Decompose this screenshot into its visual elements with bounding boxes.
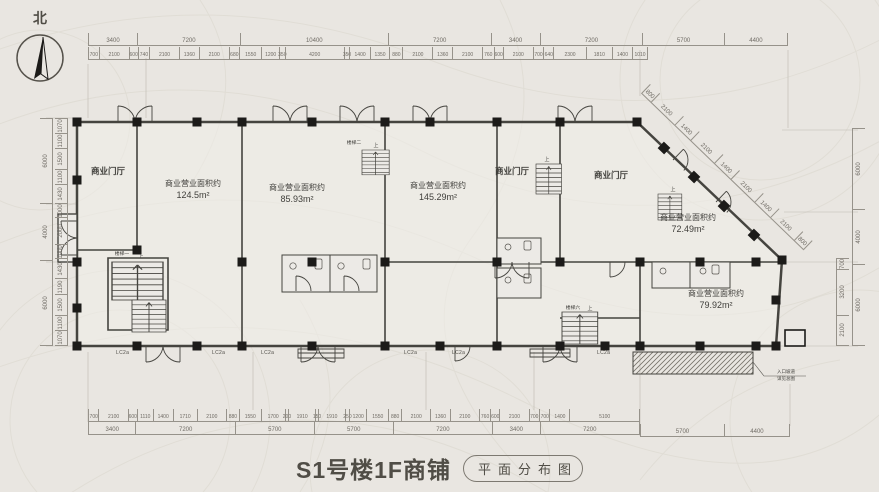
- dimension-value: 10400: [240, 33, 388, 45]
- north-label: 北: [14, 8, 66, 28]
- room-label-shop-5-area: 79.92m²: [699, 300, 732, 310]
- dimension-value: 2100: [98, 409, 127, 421]
- column: [436, 342, 445, 351]
- window-tag: LC2a: [597, 350, 610, 356]
- column: [752, 342, 761, 351]
- dimension-value: 1100: [55, 315, 67, 330]
- dimension-value: 3200: [837, 269, 849, 315]
- dimension-value: 1360: [179, 47, 199, 59]
- stair-up-5: 上: [670, 186, 675, 193]
- dimension-value: 640: [543, 47, 553, 59]
- ramp-note-line1: 入口坡道: [777, 368, 795, 375]
- dimension-value: 680: [229, 47, 239, 59]
- dimension-value: 740: [138, 47, 149, 59]
- dimension-row-bottom-right: 57004400: [640, 424, 790, 437]
- dimension-value: 1710: [173, 409, 197, 421]
- column: [636, 342, 645, 351]
- dimension-value: 1360: [430, 409, 449, 421]
- stair-up-2: 上: [373, 142, 378, 149]
- dimension-value: 3400: [491, 33, 540, 45]
- dimension-value: 3400: [88, 422, 135, 434]
- column: [193, 118, 202, 127]
- dimension-value: 700: [539, 409, 549, 421]
- stair-up-3: 上: [544, 156, 549, 163]
- dimension-value: 1700: [261, 409, 285, 421]
- dimension-value: 1000: [55, 203, 67, 217]
- dimension-column-left-outer: 600040006000: [40, 118, 53, 346]
- window-tag: LC2a: [404, 350, 417, 356]
- room-label-shop-1-area: 124.5m²: [176, 190, 209, 200]
- window-tag: LC2a: [261, 350, 274, 356]
- dimension-value: 700: [837, 258, 849, 269]
- column: [308, 342, 317, 351]
- dimension-value: 2100: [499, 409, 528, 421]
- dimension-value: 2000: [55, 217, 67, 244]
- column: [73, 258, 82, 267]
- dimension-value: 1190: [55, 278, 67, 294]
- dimension-value: 2100: [149, 47, 179, 59]
- column: [556, 342, 565, 351]
- dimension-value: 6000: [853, 264, 865, 346]
- stair-name-2: 楼梯二: [347, 139, 362, 146]
- dimension-value: 5700: [314, 422, 393, 434]
- drawing-title-bar: S1号楼1F商铺 平面分布图: [0, 451, 879, 485]
- dimension-value: 2300: [553, 47, 586, 59]
- dimension-value: 1400: [612, 47, 632, 59]
- double-door: [340, 106, 374, 122]
- dimension-value: 7200: [540, 422, 640, 434]
- dimension-value: 6000: [853, 128, 865, 209]
- column: [426, 118, 435, 127]
- column: [696, 258, 705, 267]
- dimension-value: 7200: [137, 33, 240, 45]
- dimension-value: 1200: [349, 409, 366, 421]
- dimension-value: 2100: [450, 409, 479, 421]
- dimension-value: 1200: [261, 47, 279, 59]
- dimension-value: 1430: [55, 184, 67, 204]
- room-label-shop-1-title: 商业营业面积约: [165, 178, 221, 188]
- dimension-value: 5700: [642, 33, 724, 45]
- column: [133, 342, 142, 351]
- column: [73, 342, 82, 351]
- dimension-value: 7200: [540, 33, 643, 45]
- dimension-value: 1400: [153, 409, 173, 421]
- dimension-value: 1070: [55, 118, 67, 133]
- room-label-shop-4-area: 72.49m²: [671, 224, 704, 234]
- column: [73, 304, 82, 313]
- room-label-shop-2-title: 商业营业面积约: [269, 182, 325, 192]
- dimension-value: 1400: [349, 47, 369, 59]
- dimension-value: 2100: [199, 47, 229, 59]
- dimension-value: 1110: [137, 409, 153, 421]
- column: [238, 118, 247, 127]
- dimension-value: 2100: [837, 315, 849, 346]
- dimension-value: 700: [533, 47, 544, 59]
- column: [308, 258, 317, 267]
- double-door: [301, 346, 335, 362]
- dimension-row-bottom-outer: 3400720057005700720034007200: [88, 422, 640, 435]
- column: [73, 176, 82, 185]
- dimension-value: 2100: [401, 409, 430, 421]
- dimension-row-bottom-inner: 7002100600111014001710210088015501700200…: [88, 409, 640, 422]
- room-label-shop-4-title: 商业营业面积约: [660, 212, 716, 222]
- stair-up-1: 上: [138, 253, 143, 260]
- dimension-value: 1910: [288, 409, 315, 421]
- room-label-hall-1: 商业门厅: [91, 166, 126, 176]
- dimension-row-top-outer: 340072001040072003400720057004400: [88, 33, 788, 46]
- dimension-value: 2100: [452, 47, 482, 59]
- dimension-value: 5700: [235, 422, 314, 434]
- dimension-value: 3400: [492, 422, 539, 434]
- ramp-note-line2: 详见总图: [777, 375, 795, 382]
- dimension-value: 880: [226, 409, 239, 421]
- dimension-value: 1350: [370, 47, 390, 59]
- room-label-hall-3: 商业门厅: [594, 170, 629, 180]
- staircase: [132, 300, 166, 332]
- double-door: [273, 106, 307, 122]
- column: [493, 118, 502, 127]
- floor-plan-page: 商业门厅 商业营业面积约 124.5m² 商业营业面积约 85.93m² 商业营…: [0, 0, 879, 492]
- column: [73, 118, 82, 127]
- north-arrow: 北: [14, 8, 66, 89]
- dimension-value: 5100: [569, 409, 640, 421]
- dimension-value: 1360: [432, 47, 452, 59]
- dimension-value: 4400: [724, 424, 790, 436]
- dimension-value: 700: [529, 409, 539, 421]
- column: [772, 342, 781, 351]
- dimension-value: 600: [494, 47, 503, 59]
- dimension-value: 600: [128, 409, 137, 421]
- dimension-value: 4400: [724, 33, 788, 45]
- column: [193, 342, 202, 351]
- dimension-value: 7200: [388, 33, 491, 45]
- dimension-value: 880: [389, 47, 402, 59]
- dimension-value: 2100: [197, 409, 226, 421]
- dimension-value: 700: [88, 47, 99, 59]
- column: [778, 256, 787, 265]
- room-label-shop-2-area: 85.93m²: [280, 194, 313, 204]
- dimension-value: 760: [479, 409, 490, 421]
- dimension-value: 1500: [55, 294, 67, 314]
- column: [381, 258, 390, 267]
- staircase: [536, 164, 562, 194]
- dimension-value: 1400: [549, 409, 569, 421]
- dimension-value: 1010: [632, 47, 648, 59]
- dimension-value: 6000: [40, 118, 52, 203]
- dimension-value: 880: [388, 409, 401, 421]
- column: [636, 258, 645, 267]
- dimension-value: 2100: [99, 47, 129, 59]
- building-outline: [77, 122, 782, 346]
- dimension-value: 1810: [586, 47, 612, 59]
- dimension-value: 2100: [402, 47, 432, 59]
- dimension-value: 600: [129, 47, 138, 59]
- column: [556, 118, 565, 127]
- dimension-value: 1430: [55, 258, 67, 278]
- dimension-value: 1100: [55, 133, 67, 148]
- entrance-ramp-hatch: [633, 352, 753, 374]
- dimension-value: 1910: [318, 409, 345, 421]
- room-label-shop-3-area: 145.29m²: [419, 192, 457, 202]
- dimension-column-right-inner: 70032002100: [836, 258, 849, 346]
- dimension-value: 760: [482, 47, 493, 59]
- dimension-value: 2100: [503, 47, 533, 59]
- dimension-column-right-outer: 600040006000: [852, 128, 865, 346]
- dimension-value: 1550: [366, 409, 388, 421]
- dimension-value: 1100: [55, 169, 67, 184]
- column: [238, 342, 247, 351]
- dimension-value: 7200: [393, 422, 492, 434]
- dimension-value: 1550: [239, 47, 261, 59]
- dimension-value: 3400: [88, 33, 137, 45]
- dimension-value: 4000: [853, 209, 865, 264]
- column: [696, 342, 705, 351]
- column: [238, 258, 247, 267]
- dimension-value: 6000: [40, 260, 52, 346]
- dimension-value: 4200: [285, 47, 344, 59]
- title-badge: 平面分布图: [463, 455, 583, 482]
- column: [381, 342, 390, 351]
- column: [381, 118, 390, 127]
- column: [493, 258, 502, 267]
- column: [556, 258, 565, 267]
- room-label-hall-2: 商业门厅: [495, 166, 530, 176]
- staircase: [562, 312, 598, 344]
- window-tag: LC2a: [212, 350, 225, 356]
- dimension-value: 1500: [55, 148, 67, 168]
- column: [133, 118, 142, 127]
- compass-icon: [14, 28, 66, 84]
- dimension-value: 1070: [55, 330, 67, 346]
- dimension-value: 700: [88, 409, 98, 421]
- staircase: [362, 150, 389, 175]
- stair-name-3: 楼梯六: [566, 304, 581, 311]
- dimension-value: 600: [490, 409, 499, 421]
- stair-name-1: 楼梯一: [115, 250, 130, 257]
- stair-up-4: 上: [587, 305, 592, 312]
- dimension-row-top-inner: 7002100600740210013602100680155012003504…: [88, 47, 648, 60]
- dimension-value: 7200: [135, 422, 234, 434]
- column: [752, 258, 761, 267]
- dimension-column-left-inner: 1070110015001100143010002000100014301190…: [55, 118, 68, 346]
- room-label-shop-3-title: 商业营业面积约: [410, 180, 466, 190]
- column: [633, 118, 642, 127]
- window-tag: LC2a: [452, 350, 465, 356]
- dimension-value: 1000: [55, 244, 67, 258]
- page-title: S1号楼1F商铺: [296, 451, 451, 485]
- dimension-value: 5700: [640, 424, 724, 436]
- room-label-shop-5-title: 商业营业面积约: [688, 288, 744, 298]
- column: [493, 342, 502, 351]
- corner-planter: [785, 330, 805, 346]
- dimension-value: 1550: [239, 409, 261, 421]
- window-tag: LC2a: [116, 350, 129, 356]
- column: [772, 296, 781, 305]
- dimension-value: 4000: [40, 203, 52, 260]
- staircase: [112, 262, 163, 300]
- column: [308, 118, 317, 127]
- double-door: [146, 346, 180, 362]
